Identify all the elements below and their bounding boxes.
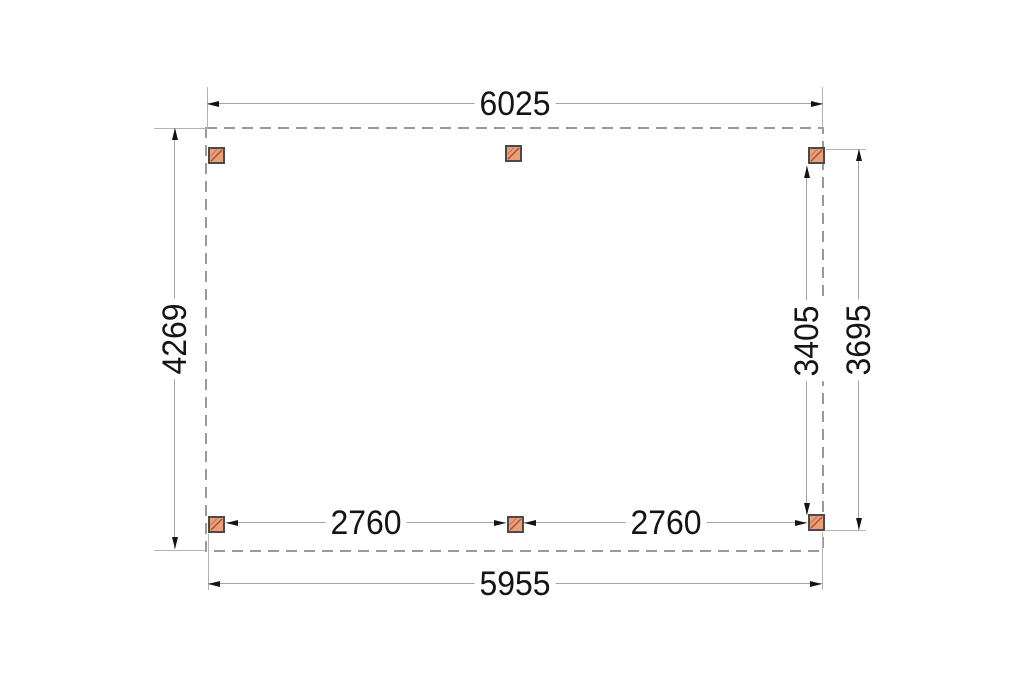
arrow-left-icon (207, 101, 219, 107)
dimension-left-height: 4269 (174, 128, 175, 549)
dim-label-top-width: 6025 (475, 87, 556, 121)
arrow-left-icon (208, 581, 220, 587)
extension-line-top-right (822, 87, 823, 129)
dimension-right-overall: 3695 (858, 149, 859, 530)
post-bottom-center (507, 516, 524, 533)
arrow-right-icon (795, 520, 807, 526)
dim-label-left-height: 4269 (158, 298, 192, 379)
extension-line-left-bottom (154, 550, 206, 551)
extension-line-right-bottom (826, 530, 866, 531)
arrow-up-icon (804, 166, 810, 178)
arrow-left-icon (524, 520, 536, 526)
dimension-bottom-width: 5955 (208, 583, 822, 584)
roof-outline-dashed (205, 127, 825, 553)
post-top-center (505, 145, 522, 162)
arrow-right-icon (811, 101, 823, 107)
wood-grain-icon (509, 518, 522, 531)
arrow-up-icon (172, 128, 178, 140)
dimension-bottom-span-right: 2760 (524, 522, 807, 523)
wood-grain-icon (210, 518, 223, 531)
dim-label-bottom-span-right: 2760 (625, 506, 706, 540)
post-bottom-right (808, 514, 825, 531)
arrow-right-icon (494, 520, 506, 526)
dim-label-bottom-width: 5955 (475, 567, 556, 601)
dimension-right-post-span: 3405 (806, 166, 807, 515)
dimension-top-width: 6025 (207, 103, 823, 104)
arrow-right-icon (810, 581, 822, 587)
arrow-down-icon (172, 537, 178, 549)
wood-grain-icon (810, 516, 823, 529)
post-top-left (208, 147, 225, 164)
arrow-down-icon (856, 518, 862, 530)
arrow-left-icon (226, 520, 238, 526)
dimension-bottom-span-left: 2760 (226, 522, 506, 523)
dim-label-right-overall: 3695 (842, 299, 876, 380)
wood-grain-icon (210, 149, 223, 162)
post-bottom-left (208, 516, 225, 533)
wood-grain-icon (810, 149, 823, 162)
extension-line-bottom-right (822, 532, 823, 590)
extension-line-top-left (207, 87, 208, 129)
dim-label-bottom-span-left: 2760 (326, 506, 407, 540)
post-top-right (808, 147, 825, 164)
plan-drawing: 6025 4269 3405 3695 2760 2760 (0, 0, 1024, 683)
wood-grain-icon (507, 147, 520, 160)
arrow-up-icon (856, 149, 862, 161)
extension-line-left-top (154, 128, 206, 129)
dim-label-right-post-span: 3405 (790, 300, 824, 381)
